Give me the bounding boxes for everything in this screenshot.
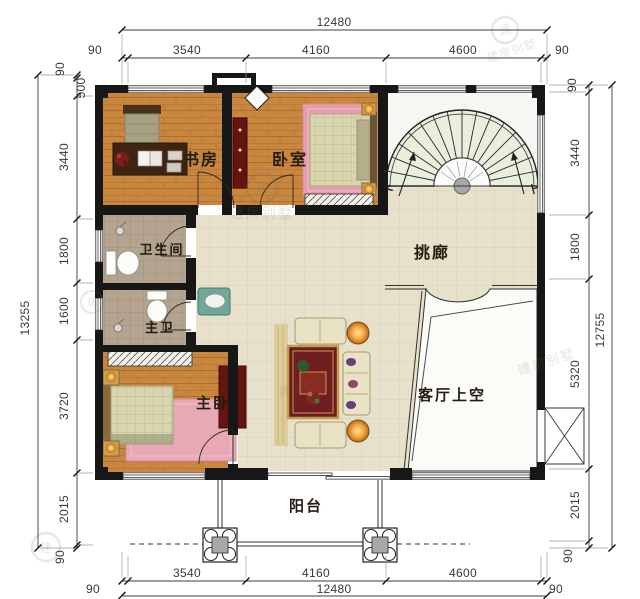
master-bedroom-label: 主卧 <box>196 394 230 412</box>
daybed-headboard <box>123 105 161 114</box>
shower-head <box>116 227 124 235</box>
window <box>538 115 544 213</box>
dim-left-seg-6: 2015 <box>57 495 71 523</box>
dim-top-seg-0: 90 <box>88 43 102 57</box>
window <box>476 86 532 92</box>
plant <box>297 360 309 372</box>
dim-top-seg-2: 4160 <box>302 43 330 57</box>
dim-right-seg-2: 1800 <box>568 233 582 261</box>
floor-plan-page: 下 上 <box>0 0 640 599</box>
dim-right-seg-4: 2015 <box>568 491 582 519</box>
round-lamp-table <box>347 420 369 442</box>
dim-right-seg-3: 5320 <box>568 360 582 388</box>
sofa <box>295 318 346 344</box>
balcony <box>130 480 470 562</box>
dim-left-seg-2: 3440 <box>57 143 71 171</box>
pillow <box>346 358 356 366</box>
open-book <box>138 151 150 166</box>
sliding-door-leaf <box>326 477 390 480</box>
balcony-column <box>363 528 397 562</box>
corridor-label: 挑廊 <box>414 243 450 262</box>
dim-right-seg-1: 3440 <box>568 139 582 167</box>
dim-left-seg-4: 1600 <box>57 297 71 325</box>
sofa <box>295 422 346 448</box>
bathroom-label: 卫生间 <box>139 242 184 257</box>
pillow <box>346 401 356 409</box>
window <box>96 230 102 262</box>
dim-left-seg-3: 1800 <box>57 237 71 265</box>
lamp <box>364 184 374 194</box>
daybed <box>125 114 159 147</box>
sliding-door-leaf <box>268 473 332 476</box>
dim-right-overall: 12755 <box>593 313 607 348</box>
dim-right-seg-5: 90 <box>561 549 575 563</box>
dim-bottom: 3540 4160 4600 90 12480 90 <box>86 552 563 599</box>
bedroom-label: 卧室 <box>272 150 308 169</box>
dim-bottom-seg-1: 3540 <box>173 566 201 580</box>
dim-left-overall: 13255 <box>18 301 32 336</box>
window <box>128 86 204 92</box>
chimney-bump <box>212 73 256 78</box>
dim-top-seg-4: 90 <box>555 43 569 57</box>
dim-top-seg-3: 4600 <box>449 43 477 57</box>
master-bed-headboard <box>103 383 111 447</box>
toilet-bowl <box>147 300 167 322</box>
wardrobe <box>305 194 373 206</box>
living-void-label: 客厅上空 <box>417 386 486 404</box>
toilet-tank <box>106 251 116 275</box>
bed-headboard <box>370 112 377 188</box>
toilet-bowl <box>117 251 139 275</box>
dim-bottom-overall: 12480 <box>317 582 352 596</box>
dim-left-seg-5: 3720 <box>57 392 71 420</box>
lamp <box>364 104 374 114</box>
dim-top-overall: 12480 <box>317 15 352 29</box>
study-label: 书房 <box>183 150 219 169</box>
svg-text:建: 建 <box>87 296 97 309</box>
toilet-tank <box>147 291 167 300</box>
svg-text:建: 建 <box>255 181 268 196</box>
desk-plant <box>115 152 129 166</box>
svg-text:建房别墅: 建房别墅 <box>230 205 294 221</box>
dim-left-seg-1: 500 <box>74 78 88 99</box>
watermark-logo: 建 <box>32 533 60 561</box>
balcony-railing <box>237 542 363 546</box>
pillow <box>357 120 370 180</box>
master-bath-label: 主卫 <box>145 320 175 335</box>
dim-bottom-seg-3: 4600 <box>449 566 477 580</box>
dim-left: 13255 90 500 3440 1800 1600 3720 2015 90 <box>18 62 93 564</box>
void-area <box>408 289 537 471</box>
lamp <box>106 443 116 453</box>
lamp <box>106 372 116 382</box>
svg-text:建: 建 <box>497 21 513 38</box>
dim-right-seg-0: 90 <box>565 78 579 92</box>
dim-bottom-seg-4: 90 <box>549 582 563 596</box>
sink <box>205 294 225 308</box>
dim-top-seg-1: 3540 <box>173 43 201 57</box>
balcony-label: 阳台 <box>289 497 323 515</box>
blanket-fold <box>111 434 173 444</box>
window <box>123 473 205 479</box>
svg-text:建: 建 <box>40 541 52 555</box>
dim-bottom-seg-0: 90 <box>86 582 100 596</box>
dim-bottom-seg-2: 4160 <box>302 566 330 580</box>
round-lamp-table <box>347 322 369 344</box>
window <box>412 473 530 479</box>
balcony-column <box>203 528 237 562</box>
desk-tray <box>168 151 182 160</box>
window <box>398 86 466 92</box>
floor-plan-svg: 下 上 <box>0 0 640 599</box>
dim-left-seg-0: 90 <box>53 62 67 76</box>
watermark-logo: 建 建房别墅 <box>476 10 538 66</box>
dim-right: 90 3440 1800 5320 2015 90 12755 <box>549 78 616 563</box>
pillow <box>348 380 358 388</box>
window <box>272 86 370 92</box>
shower-head <box>114 324 122 332</box>
